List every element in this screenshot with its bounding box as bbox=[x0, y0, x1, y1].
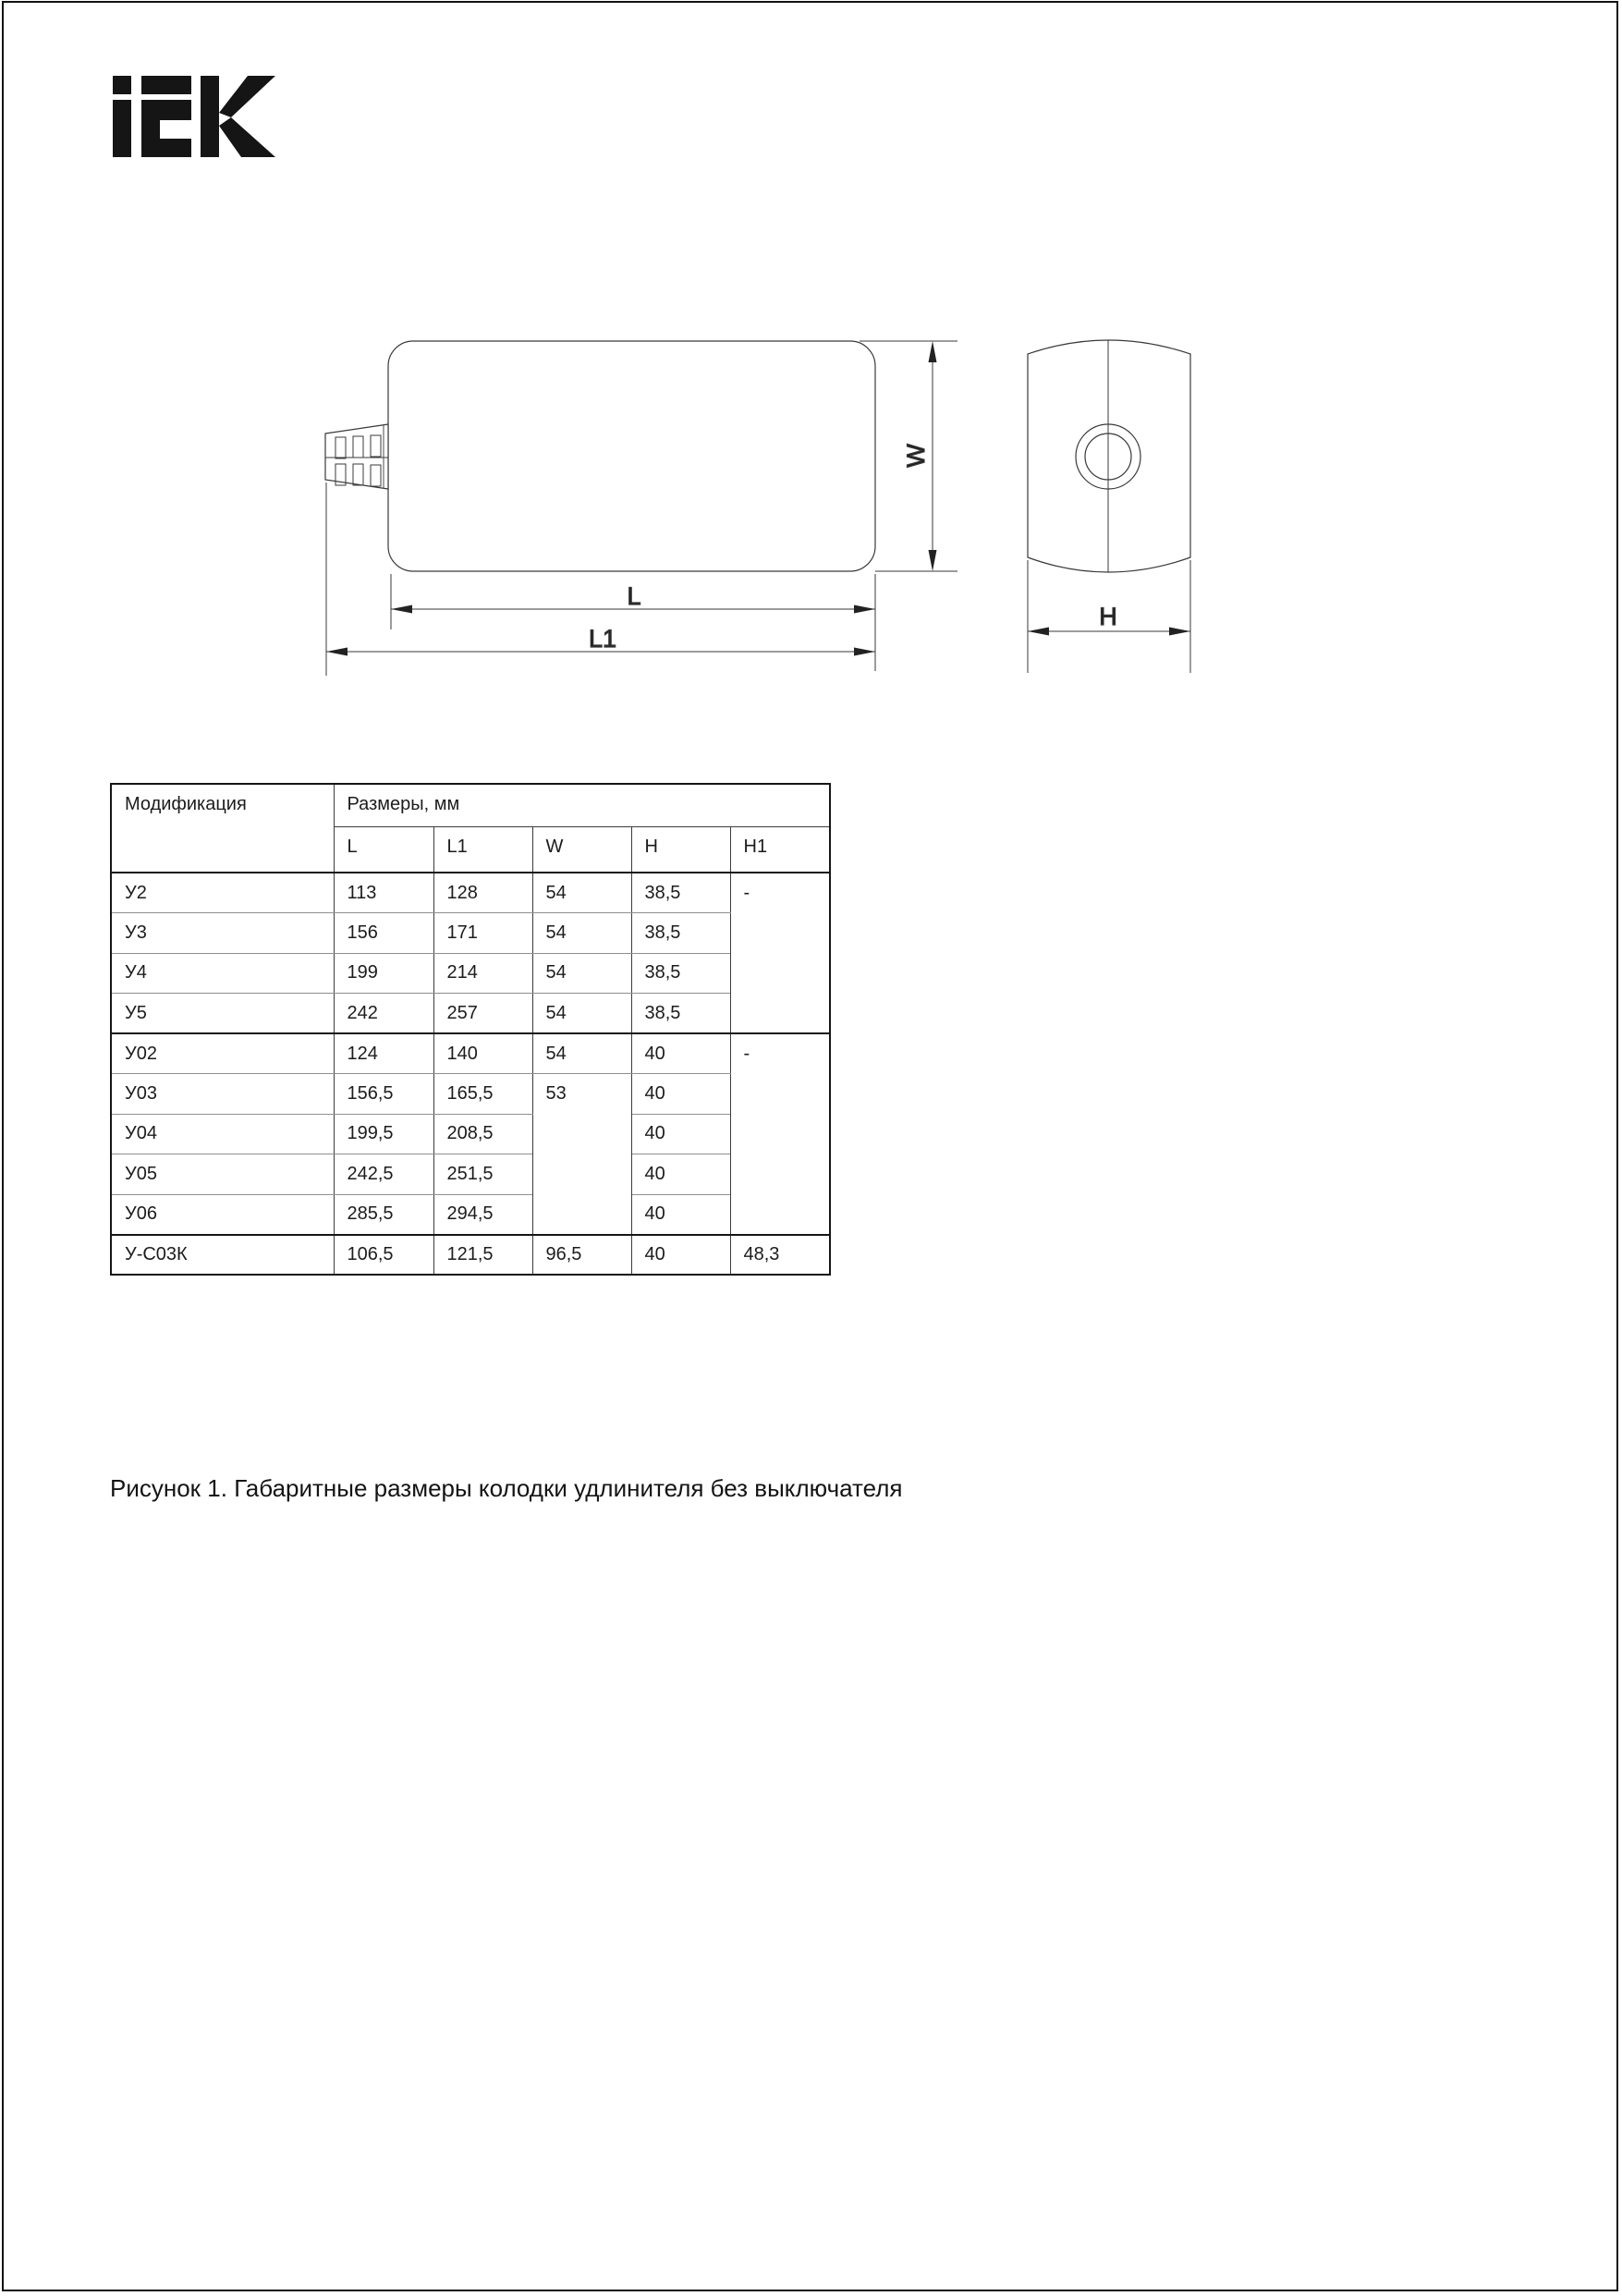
table-row: У03 156,5 165,5 53 40 bbox=[111, 1074, 830, 1115]
cell-l1: 140 bbox=[433, 1033, 532, 1074]
cell-mod: У2 bbox=[111, 873, 334, 913]
cell-l1: 257 bbox=[433, 994, 532, 1034]
cell-l: 156,5 bbox=[334, 1074, 433, 1115]
cell-l1: 165,5 bbox=[433, 1074, 532, 1115]
cell-l: 124 bbox=[334, 1033, 433, 1074]
cell-w: 54 bbox=[532, 913, 631, 954]
cell-h: 38,5 bbox=[631, 873, 730, 913]
cell-l: 199 bbox=[334, 953, 433, 994]
cell-l: 113 bbox=[334, 873, 433, 913]
dimension-label-l1: L1 bbox=[589, 625, 616, 653]
cell-w-merged: 53 bbox=[532, 1074, 631, 1235]
logo-k-upper-leg bbox=[219, 76, 275, 117]
cell-h: 40 bbox=[631, 1194, 730, 1235]
extension-block-side-view bbox=[1028, 340, 1190, 572]
cell-l1: 208,5 bbox=[433, 1114, 532, 1154]
cell-h: 38,5 bbox=[631, 953, 730, 994]
cell-mod: У02 bbox=[111, 1033, 334, 1074]
header-dimensions-group: Размеры, мм bbox=[334, 784, 830, 826]
cell-h: 40 bbox=[631, 1114, 730, 1154]
cell-l1: 251,5 bbox=[433, 1154, 532, 1195]
cell-h: 40 bbox=[631, 1154, 730, 1195]
cell-l1: 121,5 bbox=[433, 1235, 532, 1276]
cell-mod: У4 bbox=[111, 953, 334, 994]
table-row: У2 113 128 54 38,5 - bbox=[111, 873, 830, 913]
logo-k-lower-leg bbox=[219, 117, 275, 157]
cell-h1-merged: - bbox=[730, 873, 830, 1033]
dimensions-table: Модификация Размеры, мм L L1 W H H1 У2 1… bbox=[110, 783, 831, 1276]
cell-l: 156 bbox=[334, 913, 433, 954]
cell-l1: 171 bbox=[433, 913, 532, 954]
cell-l: 199,5 bbox=[334, 1114, 433, 1154]
cell-l1: 128 bbox=[433, 873, 532, 913]
cell-h: 40 bbox=[631, 1235, 730, 1276]
cell-mod: У-С03К bbox=[111, 1235, 334, 1276]
cell-h: 40 bbox=[631, 1074, 730, 1115]
table-row: У06 285,5 294,5 40 bbox=[111, 1194, 830, 1235]
dimension-label-w: W bbox=[902, 444, 930, 468]
header-modification: Модификация bbox=[111, 784, 334, 873]
cell-w: 54 bbox=[532, 873, 631, 913]
technical-drawing: W L L1 bbox=[296, 324, 1229, 684]
cell-l: 106,5 bbox=[334, 1235, 433, 1276]
table-row: У04 199,5 208,5 40 bbox=[111, 1114, 830, 1154]
table-row: У3 156 171 54 38,5 bbox=[111, 913, 830, 954]
document-page: W L L1 bbox=[0, 0, 1622, 2296]
header-w: W bbox=[532, 826, 631, 873]
header-h: H bbox=[631, 826, 730, 873]
cell-mod: У04 bbox=[111, 1114, 334, 1154]
table-header-row-1: Модификация Размеры, мм bbox=[111, 784, 830, 826]
cell-h: 38,5 bbox=[631, 913, 730, 954]
logo-e-body bbox=[141, 100, 191, 157]
figure-caption: Рисунок 1. Габаритные размеры колодки уд… bbox=[110, 1472, 902, 1504]
logo-e-topbar bbox=[141, 76, 191, 94]
logo-i-stem bbox=[113, 100, 131, 157]
cell-h: 38,5 bbox=[631, 994, 730, 1034]
cell-w: 54 bbox=[532, 1033, 631, 1074]
table-row: У5 242 257 54 38,5 bbox=[111, 994, 830, 1034]
extension-block-top-view bbox=[388, 341, 875, 571]
cell-w: 96,5 bbox=[532, 1235, 631, 1276]
cell-mod: У03 bbox=[111, 1074, 334, 1115]
cell-l1: 214 bbox=[433, 953, 532, 994]
table-row: У05 242,5 251,5 40 bbox=[111, 1154, 830, 1195]
cell-mod: У06 bbox=[111, 1194, 334, 1235]
cell-l: 242,5 bbox=[334, 1154, 433, 1195]
cell-w: 54 bbox=[532, 953, 631, 994]
cell-w: 54 bbox=[532, 994, 631, 1034]
iek-logo-icon bbox=[110, 74, 277, 159]
cable-gland bbox=[325, 424, 388, 489]
cell-h1: 48,3 bbox=[730, 1235, 830, 1276]
cell-l: 242 bbox=[334, 994, 433, 1034]
table-row: У-С03К 106,5 121,5 96,5 40 48,3 bbox=[111, 1235, 830, 1276]
header-l: L bbox=[334, 826, 433, 873]
dimension-label-l: L bbox=[627, 582, 640, 610]
header-h1: H1 bbox=[730, 826, 830, 873]
logo-k-stem bbox=[201, 76, 219, 157]
cell-l: 285,5 bbox=[334, 1194, 433, 1235]
cell-h1-merged: - bbox=[730, 1033, 830, 1235]
cell-h: 40 bbox=[631, 1033, 730, 1074]
cell-mod: У5 bbox=[111, 994, 334, 1034]
cell-mod: У3 bbox=[111, 913, 334, 954]
table-row: У02 124 140 54 40 - bbox=[111, 1033, 830, 1074]
header-l1: L1 bbox=[433, 826, 532, 873]
cell-l1: 294,5 bbox=[433, 1194, 532, 1235]
logo-i-dot bbox=[113, 76, 131, 94]
dimension-label-h: H bbox=[1099, 603, 1117, 630]
cell-mod: У05 bbox=[111, 1154, 334, 1195]
table-row: У4 199 214 54 38,5 bbox=[111, 953, 830, 994]
